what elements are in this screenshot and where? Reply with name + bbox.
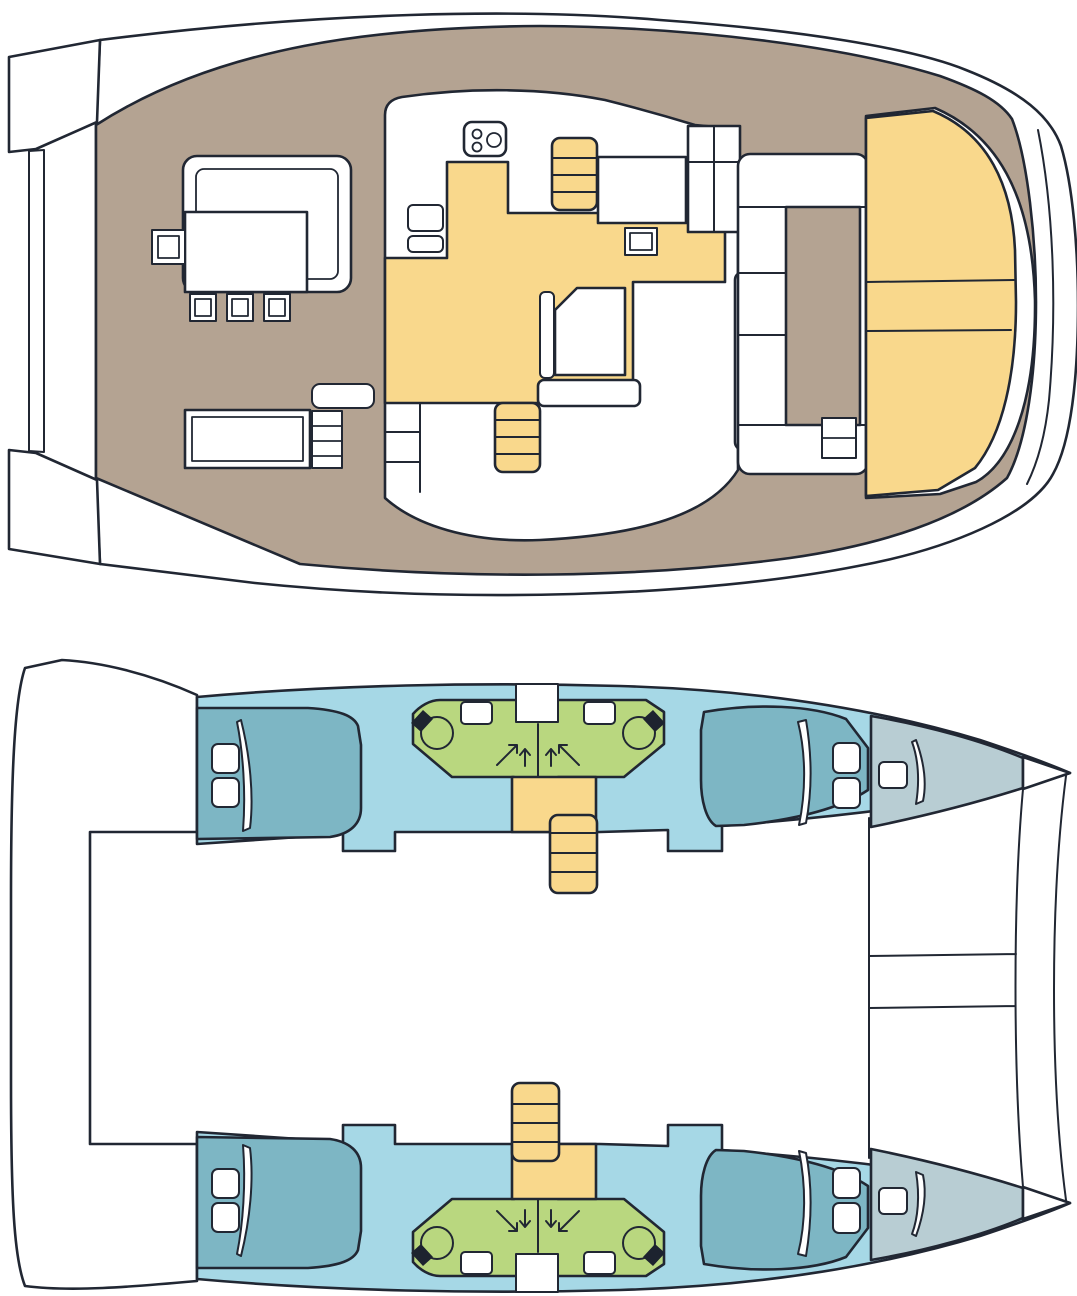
- aft-platform: [11, 660, 197, 1289]
- forward-stools: [190, 294, 290, 321]
- forward-side-table: [152, 230, 185, 264]
- deck-locker-hatch: [185, 410, 310, 468]
- head-sink: [584, 702, 615, 724]
- galley-sink-top: [408, 205, 443, 231]
- port-companionway-stairs: [552, 138, 597, 210]
- starboard-bow-tip: [9, 450, 100, 564]
- cockpit-table: [786, 207, 860, 425]
- dinette-bench-left: [540, 292, 554, 378]
- forward-crossbeam: [29, 150, 44, 452]
- transom-steps: [822, 418, 856, 458]
- bow-crossbeam-lines: [869, 776, 1066, 1200]
- floorplan-drawing: [0, 0, 1077, 1296]
- main-deck-view: [9, 14, 1077, 595]
- hull-accommodation-view: [11, 660, 1070, 1292]
- salon-door-track: [688, 126, 740, 232]
- starboard-hull-stairs: [512, 1083, 559, 1161]
- forward-bed-pillow: [833, 743, 860, 773]
- forward-table: [185, 212, 307, 292]
- aft-bed-pillow: [212, 778, 239, 807]
- bow-locker-hatch: [879, 762, 907, 788]
- starboard-companionway-stairs: [495, 403, 540, 472]
- port-hull: [197, 684, 1070, 851]
- catamaran-floorplan-page: [0, 0, 1077, 1296]
- salon-seat-module: [625, 228, 657, 255]
- bow-tip: [1023, 757, 1070, 789]
- galley-sink-bottom: [408, 236, 443, 252]
- galley-stove-icon: [464, 122, 506, 156]
- dinette-table: [555, 288, 625, 375]
- port-bow-tip: [9, 40, 100, 152]
- head-door: [516, 684, 558, 722]
- chart-module: [598, 157, 686, 223]
- aft-bed-pillow: [212, 744, 239, 773]
- forward-bed-pillow: [833, 778, 860, 808]
- dinette-bench-bottom: [538, 380, 640, 406]
- aft-sunbed-seats: [866, 111, 1016, 496]
- port-hull-stairs: [550, 815, 597, 893]
- starboard-hull: [197, 1125, 1070, 1292]
- head-sink: [461, 702, 492, 724]
